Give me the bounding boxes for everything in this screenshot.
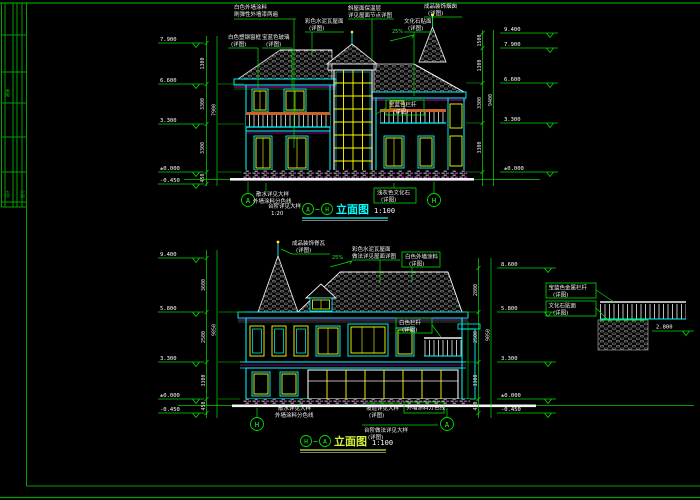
footnote: 坡道详见大样: [366, 404, 400, 412]
title-tilde: ~: [315, 206, 321, 214]
annotation-label: 彩色水泥瓦屋面: [305, 17, 344, 25]
level-value: 6.600: [160, 78, 177, 84]
sheet-frame: [0, 3, 700, 498]
level-value: 7.900: [504, 42, 521, 48]
annotation-label: 白色塑钢窗框: [228, 33, 262, 41]
drawing-title: 立面图: [336, 202, 369, 216]
top-elevation-balconies: [246, 109, 446, 127]
footnote: 台阶详见大样: [268, 202, 302, 210]
annotation-label: 做法详见屋面详图: [352, 252, 397, 260]
window: [384, 136, 404, 168]
dim-value: 3300: [473, 374, 479, 386]
annotation-label: 白色外墙涂料: [234, 3, 268, 11]
annotation-label: 斜屋面保温层: [348, 4, 382, 12]
dim-total: 9850: [212, 324, 218, 336]
annotation-label: (详图): [309, 24, 324, 32]
title-tilde: ~: [313, 438, 319, 446]
window: [286, 136, 308, 170]
annotation-label: 彩色水泥瓦屋面: [352, 245, 391, 253]
dim-value: 450: [200, 173, 206, 182]
window: [280, 372, 298, 396]
top-elevation-ground: [184, 170, 540, 181]
cad-sheet: 建施 设计 图号: [0, 0, 700, 500]
level-value: ±0.000: [501, 393, 521, 399]
top-dims-left: 7.900 6.600 3.300 ±0.000 -0.450 1300 330…: [158, 36, 244, 189]
title-axis-letter: H: [304, 439, 308, 446]
window: [252, 372, 270, 396]
footnote: (详图): [368, 433, 383, 441]
roof-slope-label: 25%: [332, 255, 343, 261]
annotation-label: 宝蓝色玻璃: [262, 33, 290, 41]
annotation-label: 成品装饰烟囱: [424, 2, 457, 10]
dim-value: 450: [473, 401, 479, 410]
footnote: (详图): [369, 411, 384, 419]
window: [294, 326, 308, 356]
annotation-label: (详图): [553, 309, 568, 317]
drawing-title: 立面图: [334, 434, 367, 448]
window: [250, 326, 264, 356]
dim-value: 1300: [477, 59, 483, 71]
dim-value: 3300: [200, 98, 206, 110]
annotation-label: (详图): [393, 108, 408, 116]
titleblock-cell-b: 图号: [19, 190, 25, 198]
dim-value: 1300: [200, 57, 206, 69]
dim-value: 450: [201, 401, 207, 410]
annotation-label: (详图): [553, 291, 568, 299]
dim-value: 3300: [200, 142, 206, 154]
annotation-label: 宝蓝色栏杆: [389, 101, 417, 109]
footnote: 散水详见大样: [278, 404, 312, 412]
level-value: 5.800: [501, 306, 518, 312]
annotation-label: (详图): [402, 326, 417, 334]
dim-total: 9050: [486, 329, 492, 341]
bottom-terrace: 2.800: [598, 302, 694, 350]
window: [252, 89, 268, 112]
level-value: -0.450: [160, 178, 180, 184]
level-value: 3.300: [504, 117, 521, 123]
axis-bubble-letter: H: [255, 421, 259, 429]
dim-value: 2800: [473, 284, 479, 296]
footnote: 散水详见大样: [256, 190, 290, 198]
level-value: 3.300: [501, 356, 518, 362]
top-title: A ~ H 立面图 1:100: [302, 202, 395, 221]
annotation-label: 白色外墙涂料: [405, 253, 439, 261]
dim-value: 3300: [477, 141, 483, 153]
window: [316, 326, 340, 356]
footnote: 外墙涂料分色线: [275, 411, 314, 419]
annotation-label: (详图): [428, 9, 443, 17]
annotation-label: 白色栏杆: [399, 319, 422, 327]
annotation-label: (详图): [231, 40, 246, 48]
level-value: 6.600: [504, 77, 521, 83]
annotation-label: 文化石贴面: [404, 17, 432, 25]
annotation-label: (详图): [408, 24, 423, 32]
bottom-dims-left: 9.400 5.800 3.300 ±0.000 -0.450 3600 250…: [158, 250, 244, 418]
annotation-label: 宝蓝色金属栏杆: [549, 284, 588, 292]
window: [254, 136, 272, 170]
dim-value: 1500: [477, 34, 483, 46]
level-value: -0.450: [501, 407, 521, 413]
annotation-label: 文化石贴面: [549, 302, 577, 310]
dim-value: 3300: [477, 97, 483, 109]
dim-value: 2500: [201, 331, 207, 343]
titleblock-side-label: 建施: [4, 89, 10, 97]
dim-value: 3300: [201, 374, 207, 386]
axis-bubble-letter: A: [445, 421, 450, 429]
roof-slope-label: 25%: [392, 29, 403, 35]
bottom-elevation-balcony: [424, 338, 462, 356]
level-value: 9.400: [160, 252, 177, 258]
window: [284, 89, 306, 112]
level-value: -0.450: [160, 407, 180, 413]
annotation-label: (详图): [296, 246, 311, 254]
level-value: ±0.000: [504, 166, 524, 172]
dim-total: 9400: [488, 94, 494, 106]
axis-bubble-letter: A: [246, 197, 251, 205]
level-value: 3.300: [160, 356, 177, 362]
top-elevation-roofs: [234, 14, 466, 100]
annotation-label: 详见屋面节点详图: [348, 11, 393, 19]
top-dims-right: 9.400 7.900 6.600 3.300 ±0.000 1500 1300…: [466, 27, 558, 186]
top-elevation-walls: [246, 85, 464, 178]
title-axis-letter: A: [323, 439, 327, 446]
annotation-label: 成品装饰脊瓦: [292, 239, 326, 247]
level-value: ±0.000: [160, 393, 180, 399]
annotation-label: 刷弹性外墙漆两遍: [234, 10, 279, 18]
dim-value: 2500: [473, 331, 479, 343]
level-value: 5.800: [160, 306, 177, 312]
level-value: 8.600: [501, 262, 518, 268]
top-elevation-windows: [252, 89, 434, 170]
footnote: 1:20: [271, 211, 284, 217]
level-value: 2.800: [656, 325, 673, 331]
footnote: 台阶做法详见大样: [364, 426, 409, 434]
title-axis-letter: H: [325, 207, 329, 214]
footnote: (详图): [381, 196, 396, 204]
axis-bubble-letter: H: [432, 197, 436, 205]
drawing-scale: 1:100: [374, 207, 395, 215]
annotation-label: (详图): [409, 260, 424, 268]
window: [348, 324, 388, 356]
title-axis-letter: A: [306, 207, 310, 214]
top-elevation-stair-glazing: [334, 70, 372, 178]
window: [272, 326, 286, 356]
bottom-dims-right: 8.600 5.800 3.300 ±0.000 -0.450 2800 250…: [464, 258, 556, 418]
footnote: 外墙涂料分色线: [407, 404, 446, 412]
window: [418, 136, 434, 168]
dim-value: 3600: [201, 279, 207, 291]
level-value: 9.400: [504, 27, 521, 33]
footnote: 浅灰色文化石: [377, 189, 411, 197]
dim-total: 7900: [212, 104, 218, 116]
level-value: 3.300: [160, 118, 177, 124]
window-wall: [308, 370, 458, 399]
annotation-label: (详图): [266, 40, 281, 48]
level-value: ±0.000: [160, 166, 180, 172]
level-value: 7.900: [160, 37, 177, 43]
titleblock-cell-a: 设计: [4, 190, 10, 198]
